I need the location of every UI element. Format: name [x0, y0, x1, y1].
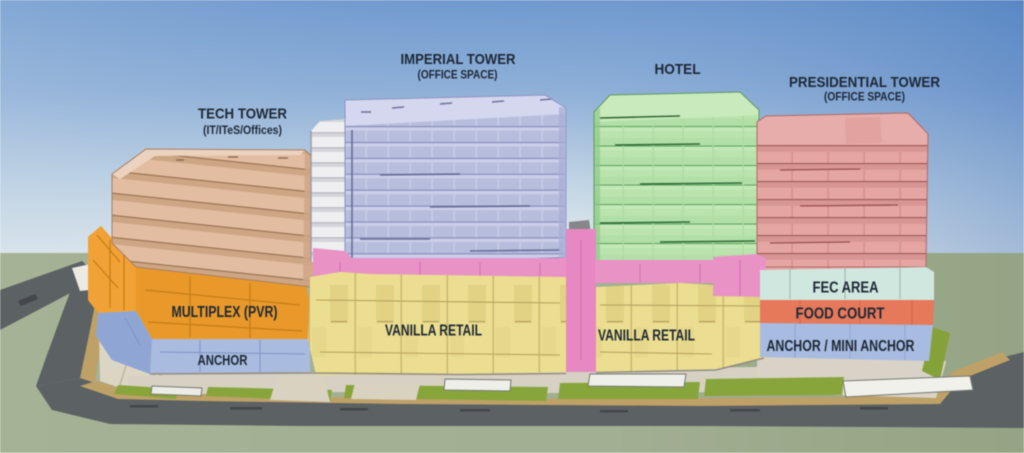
svg-text:IMPERIAL TOWER: IMPERIAL TOWER	[401, 51, 516, 68]
svg-text:PRESIDENTIAL TOWER: PRESIDENTIAL TOWER	[789, 74, 940, 91]
svg-text:(IT/ITeS/Offices): (IT/ITeS/Offices)	[203, 125, 282, 137]
svg-text:ANCHOR / MINI ANCHOR: ANCHOR / MINI ANCHOR	[767, 338, 915, 355]
svg-text:VANILLA RETAIL: VANILLA RETAIL	[598, 328, 695, 345]
svg-text:HOTEL: HOTEL	[655, 61, 701, 78]
svg-text:(OFFICE SPACE): (OFFICE SPACE)	[824, 92, 905, 104]
svg-text:VANILLA RETAIL: VANILLA RETAIL	[385, 323, 482, 340]
svg-text:ANCHOR: ANCHOR	[198, 352, 248, 369]
svg-text:FEC AREA: FEC AREA	[813, 280, 879, 297]
svg-text:MULTIPLEX (PVR): MULTIPLEX (PVR)	[172, 304, 278, 321]
svg-text:(OFFICE SPACE): (OFFICE SPACE)	[418, 70, 498, 82]
svg-text:TECH TOWER: TECH TOWER	[198, 106, 287, 123]
svg-text:FOOD COURT: FOOD COURT	[796, 306, 885, 323]
